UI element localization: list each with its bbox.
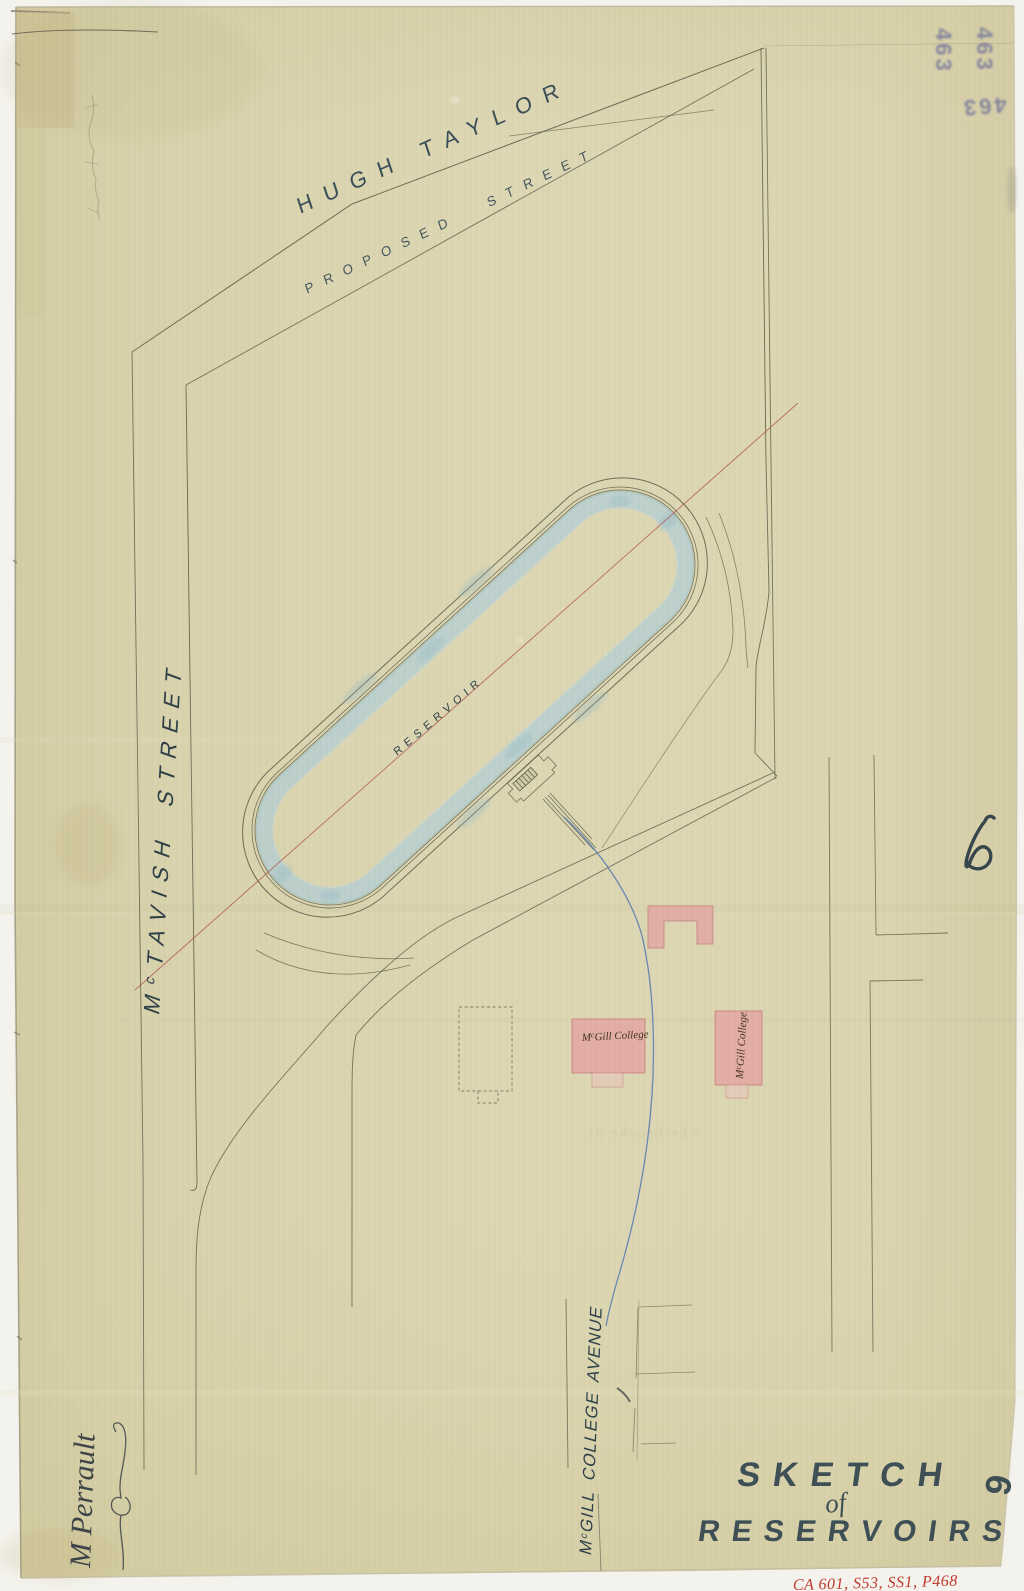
svg-text:463: 463 — [972, 27, 997, 73]
svg-text:CA 601, S53, SS1, P468: CA 601, S53, SS1, P468 — [793, 1573, 958, 1591]
svg-text:RESERVOIRS: RESERVOIRS — [696, 1515, 1017, 1548]
svg-text:M Perrault: M Perrault — [64, 1432, 102, 1569]
svg-text:463: 463 — [960, 92, 1008, 121]
svg-text:Sherbrooke St: Sherbrooke St — [587, 1125, 698, 1141]
svg-text:SKETCH: SKETCH — [735, 1456, 958, 1494]
svg-text:463: 463 — [931, 28, 956, 74]
